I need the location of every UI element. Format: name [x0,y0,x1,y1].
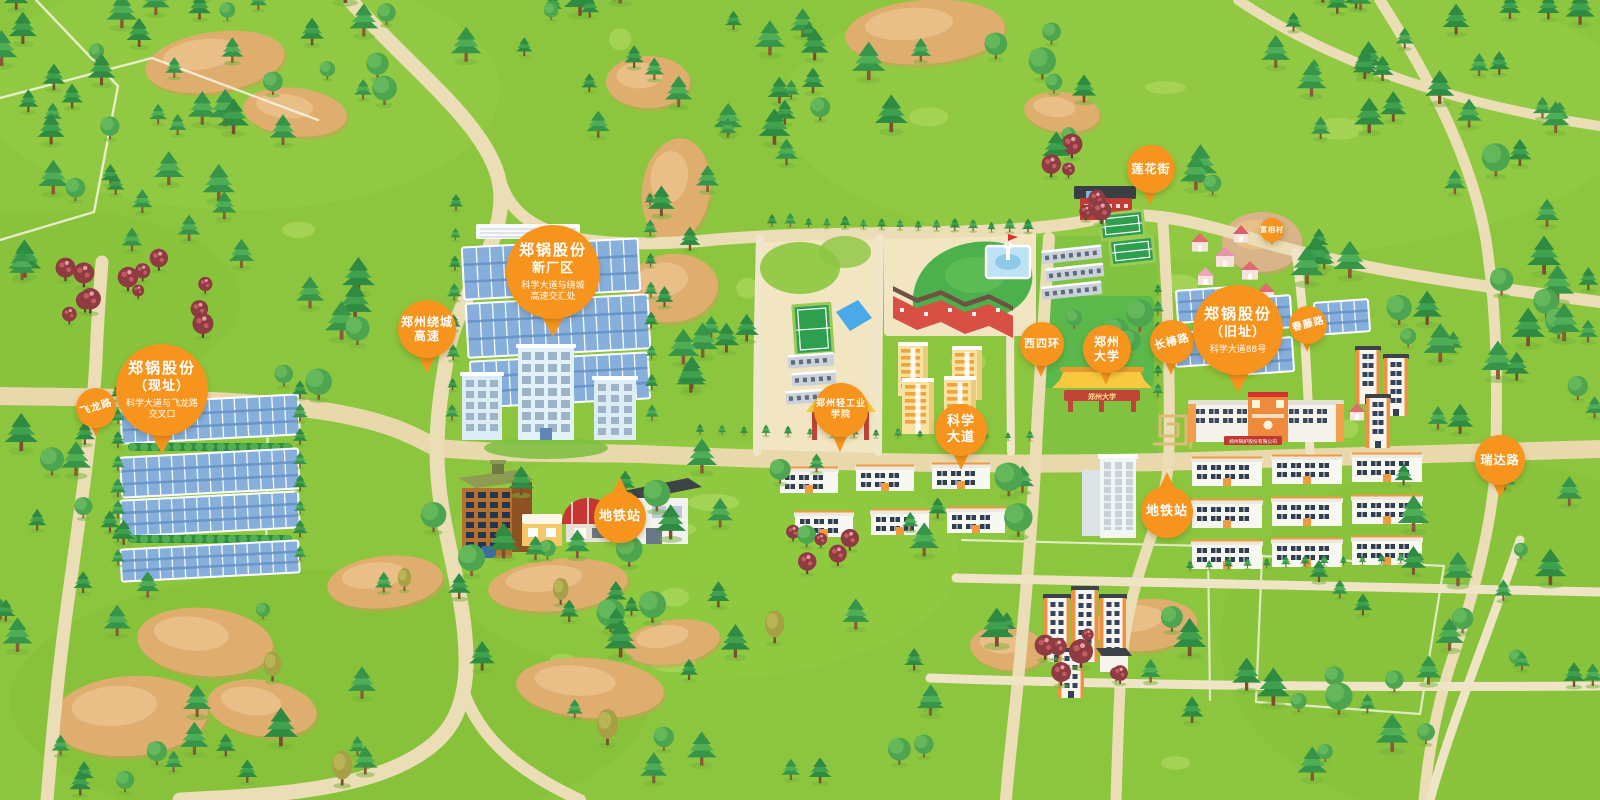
marker-label: 郑州绕城高速 [401,315,453,344]
marker-label: 春藤路 [1291,315,1326,335]
marker-bubble: 郑锅股份（旧址）科学大道88号 [1193,285,1283,375]
marker-label: 科学大道 [947,414,975,445]
marker-zhengzhou-university[interactable]: 郑州大学 [1083,325,1131,373]
marker-bubble: 地铁站 [594,491,646,543]
marker-zhengguo-new-plant[interactable]: 郑锅股份新厂区科学大道与绕城高速交汇处 [506,225,600,319]
old-site-banner-sign: 郑州锅炉股份有限公司 [1229,438,1277,445]
zhengzhou-university-gate-sign: 郑州大学 [1088,392,1116,401]
marker-label: 地铁站 [599,509,641,525]
marker-bubble: 科学大道 [935,404,987,456]
marker-raocheng-expressway[interactable]: 郑州绕城高速 [398,300,456,358]
illustrated-map: 郑州大学 郑州轻工业学院 郑州锅炉股份有限公司 飞龙路郑锅股份（现址）科学大道与… [0,0,1600,800]
residential-rows-east [1191,453,1423,570]
building-yellow-house [522,514,562,546]
marker-bubble: 地铁站 [1141,486,1193,538]
marker-bubble: 莲花街 [1127,145,1175,193]
marker-bubble: 西四环 [1020,322,1064,366]
marker-label: 郑锅股份（现址）科学大道与飞龙路交叉口 [126,358,198,422]
marker-xisihuan-road[interactable]: 西四环 [1020,322,1064,366]
marker-changchun-road[interactable]: 长椿路 [1150,320,1194,364]
marker-label: 瑞达路 [1480,453,1519,467]
marker-bubble: 长椿路 [1150,320,1194,364]
marker-label: 飞龙路 [78,397,113,419]
marker-bubble: 郑州轻工业学院 [814,383,868,437]
road-campus-lane-right [878,238,880,452]
marker-qinggong-college[interactable]: 郑州轻工业学院 [814,383,868,437]
map-illustration: 郑州大学 郑州轻工业学院 郑州锅炉股份有限公司 [0,0,1600,800]
road-campus-lane-left [757,238,760,452]
marker-label: 西四环 [1024,337,1060,350]
marker-label: 郑锅股份（旧址）科学大道88号 [1204,304,1272,356]
marker-bubble: 郑州大学 [1083,325,1131,373]
marker-zhengguo-old-site[interactable]: 郑锅股份（旧址）科学大道88号 [1193,285,1283,375]
marker-village-marker[interactable]: 富相村 [1260,218,1284,242]
marker-label: 富相村 [1260,226,1284,234]
marker-bubble: 春藤路 [1289,306,1327,344]
marker-label: 郑州轻工业学院 [816,399,866,421]
marker-feilong-road[interactable]: 飞龙路 [76,388,116,428]
marker-chunteng-road[interactable]: 春藤路 [1289,306,1327,344]
marker-kexue-avenue[interactable]: 科学大道 [935,404,987,456]
marker-label: 地铁站 [1146,504,1188,520]
marker-bubble: 富相村 [1260,218,1284,242]
marker-bubble: 郑州绕城高速 [398,300,456,358]
marker-bubble: 郑锅股份新厂区科学大道与绕城高速交汇处 [506,225,600,319]
marker-label: 郑锅股份新厂区科学大道与绕城高速交汇处 [519,240,587,304]
marker-metro-station-west[interactable]: 地铁站 [594,491,646,543]
marker-ruida-road[interactable]: 瑞达路 [1475,435,1525,485]
marker-lianhua-street[interactable]: 莲花街 [1127,145,1175,193]
marker-bubble: 郑锅股份（现址）科学大道与飞龙路交叉口 [116,344,208,436]
marker-label: 郑州大学 [1094,335,1120,364]
marker-bubble: 瑞达路 [1475,435,1525,485]
marker-zhengguo-current-site[interactable]: 郑锅股份（现址）科学大道与飞龙路交叉口 [116,344,208,436]
marker-label: 莲花街 [1131,162,1170,176]
marker-metro-station-east[interactable]: 地铁站 [1141,486,1193,538]
marker-label: 长椿路 [1153,331,1191,353]
marker-bubble: 飞龙路 [76,388,116,428]
